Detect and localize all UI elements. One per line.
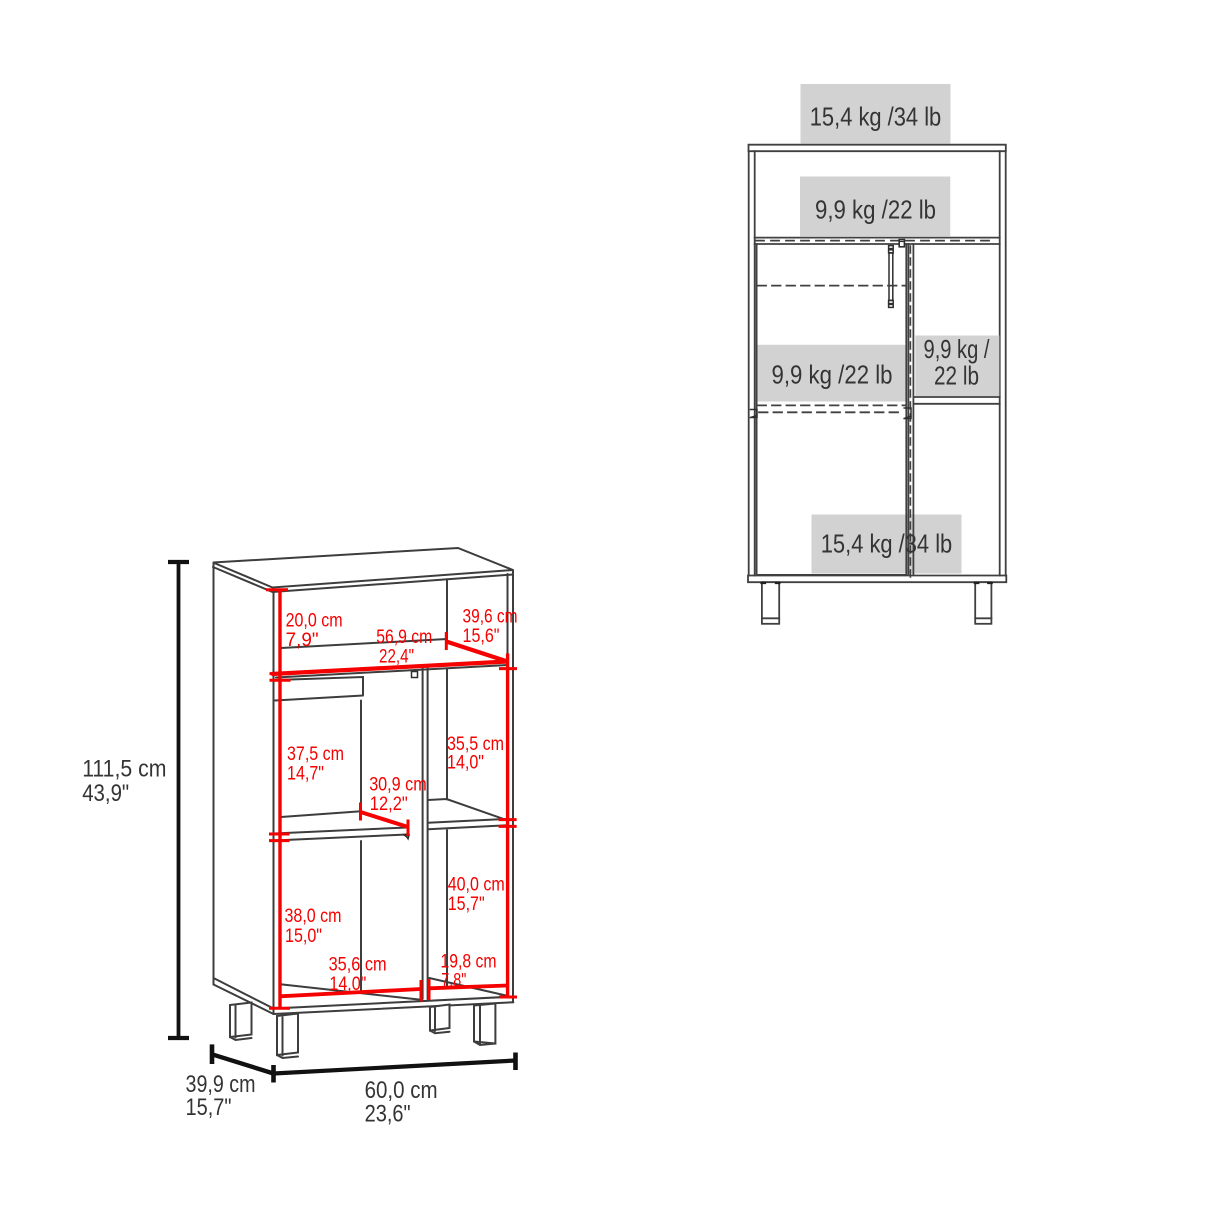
svg-text:15,7": 15,7" (186, 1094, 232, 1121)
svg-text:9,9 kg /: 9,9 kg / (924, 334, 991, 364)
svg-text:15,4 kg /34 lb: 15,4 kg /34 lb (810, 101, 942, 131)
svg-text:22,4": 22,4" (379, 647, 414, 668)
svg-text:7,8": 7,8" (441, 970, 466, 991)
svg-text:9,9 kg /22 lb: 9,9 kg /22 lb (815, 195, 936, 225)
svg-text:40,0 cm: 40,0 cm (448, 875, 505, 896)
svg-text:14,0": 14,0" (447, 753, 484, 774)
svg-text:56,9 cm: 56,9 cm (376, 627, 432, 648)
svg-text:37,5 cm: 37,5 cm (287, 744, 344, 765)
svg-text:14,7": 14,7" (287, 764, 324, 785)
svg-text:38,0 cm: 38,0 cm (285, 906, 342, 927)
svg-text:20,0 cm: 20,0 cm (286, 610, 343, 631)
svg-text:12,2": 12,2" (370, 794, 408, 815)
svg-text:15,7": 15,7" (448, 894, 485, 915)
svg-text:9,9 kg /22 lb: 9,9 kg /22 lb (772, 360, 893, 390)
svg-text:15,0": 15,0" (285, 926, 322, 947)
svg-text:14,0": 14,0" (329, 974, 366, 995)
svg-text:30,9 cm: 30,9 cm (369, 775, 427, 796)
svg-text:15,6": 15,6" (463, 626, 500, 647)
svg-text:7,9": 7,9" (286, 630, 319, 651)
svg-text:39,6 cm: 39,6 cm (463, 606, 518, 627)
svg-text:111,5 cm: 111,5 cm (82, 755, 166, 782)
svg-text:22 lb: 22 lb (934, 361, 979, 391)
svg-text:35,6 cm: 35,6 cm (329, 955, 387, 976)
svg-text:15,4 kg /34 lb: 15,4 kg /34 lb (821, 529, 953, 559)
svg-text:23,6": 23,6" (365, 1100, 411, 1127)
svg-text:43,9": 43,9" (82, 780, 129, 807)
